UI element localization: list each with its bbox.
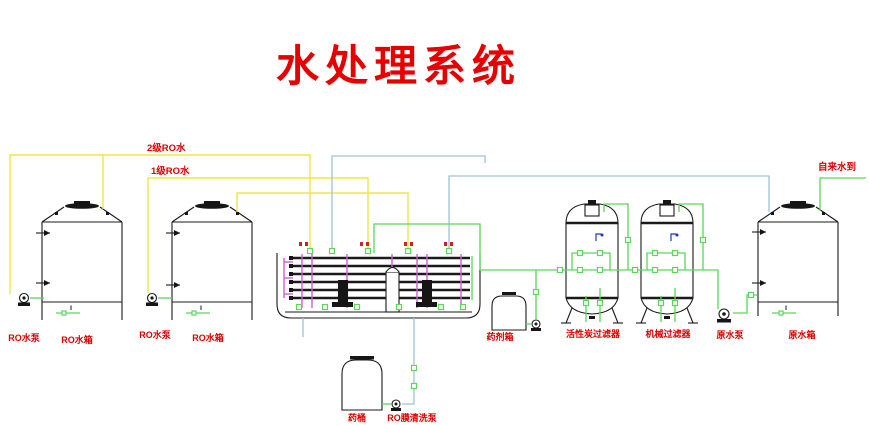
ro-pump-2: [146, 294, 158, 307]
high-pressure-pumps: [332, 280, 437, 307]
activated-carbon-filter-vessel: [561, 200, 623, 323]
label-ro-tank-1: RO水箱: [61, 334, 93, 345]
ro-water-tank-1: [36, 201, 122, 320]
label-chemical-barrel: 药桶: [348, 412, 366, 423]
membrane-vessels: [289, 256, 470, 300]
label-raw-water-tank: 原水箱: [788, 329, 815, 340]
cleaning-pump: [391, 400, 401, 411]
dosing-pump: [531, 320, 541, 331]
ro-pump-1: [18, 294, 30, 307]
label-mechanical-filter: 机械过滤器: [645, 328, 691, 339]
manhole: [585, 205, 599, 216]
ro-top-fittings: [299, 242, 453, 246]
ro-membrane-unit: [277, 253, 480, 318]
label-ro-pump-1: RO水泵: [8, 332, 41, 343]
level-gauge-mark: Ⅱ: [70, 306, 73, 312]
manhole: [195, 203, 229, 209]
label-raw-water-pump: 原水泵: [716, 329, 744, 340]
label-cleaning-pump: RO膜清洗泵: [387, 412, 438, 423]
level-gauge-mark: Ⅱ: [785, 306, 788, 312]
manhole: [781, 203, 815, 209]
dosing-tank: [492, 292, 526, 330]
label-dosing-tank: 药剂箱: [486, 331, 513, 342]
level-gauge-mark: Ⅱ: [200, 306, 203, 312]
label-first-stage-ro-water: 1级RO水: [151, 165, 190, 177]
ro-water-tank-2: [166, 201, 252, 320]
level-flags: [166, 230, 180, 288]
manhole: [65, 203, 99, 209]
raw-water-pump: [717, 309, 731, 323]
manhole: [660, 205, 674, 216]
gauge-icon: [676, 234, 679, 237]
chemical-barrel: [342, 356, 382, 410]
label-carbon-filter: 活性炭过滤器: [566, 328, 621, 339]
level-flags: [752, 229, 766, 286]
raw-water-tank: [752, 201, 838, 316]
label-ro-pump-2: RO水泵: [139, 329, 172, 340]
diagram-page: 水处理系统: [0, 0, 869, 425]
label-second-stage-ro-water: 2级RO水: [147, 142, 186, 154]
level-flags: [36, 230, 50, 286]
gauge-icon: [601, 234, 604, 237]
diagram-canvas: 2级RO水 1级RO水 自来水到 RO水泵 RO水箱 RO水泵 RO水箱 药桶 …: [0, 0, 869, 425]
mechanical-filter-vessel: [636, 200, 698, 323]
label-ro-tank-2: RO水箱: [192, 332, 224, 343]
label-tap-water-inlet: 自来水到: [818, 161, 856, 173]
